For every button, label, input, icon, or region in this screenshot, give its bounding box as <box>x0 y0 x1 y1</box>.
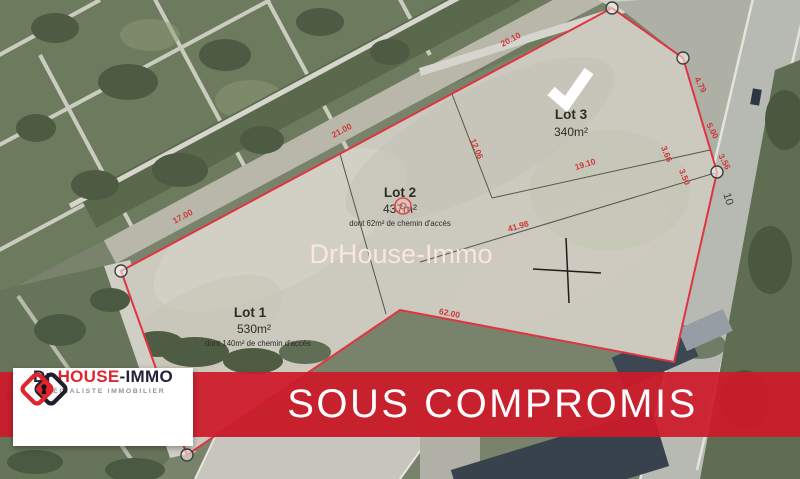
lot3-area: 340m² <box>554 125 588 139</box>
logo-suffix: -IMMO <box>120 367 173 386</box>
lot2-note: dont 62m² de chemin d'accès <box>349 219 451 228</box>
lot1-name: Lot 1 <box>234 305 267 320</box>
lot1-note: dont 140m² de chemin d'accès <box>205 339 311 348</box>
lot3-name: Lot 3 <box>555 107 588 122</box>
watermark-ring-icon <box>395 198 411 214</box>
listing-photo: Lot 1 530m² dont 140m² de chemin d'accès… <box>0 0 800 479</box>
watermark-text: DrHouse-Immo <box>309 239 492 269</box>
agency-logo-card: Dr HOUSE-IMMO SPÉCIALISTE IMMOBILIER <box>13 368 193 446</box>
status-banner-label: SOUS COMPROMIS <box>287 382 698 427</box>
lot1-area: 530m² <box>237 322 271 336</box>
agency-logo-icon <box>13 370 75 408</box>
